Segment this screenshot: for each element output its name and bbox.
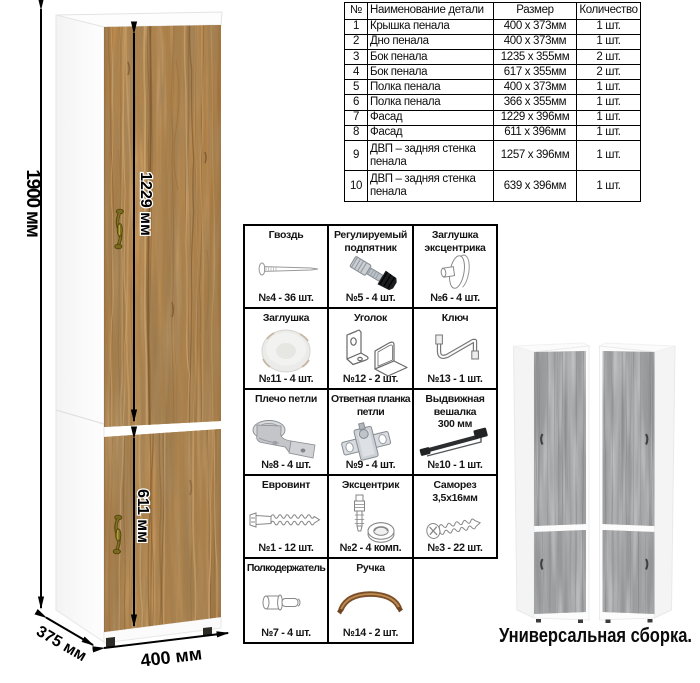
svg-text:1900 мм: 1900 мм bbox=[22, 169, 43, 236]
svg-text:400 мм: 400 мм bbox=[139, 643, 203, 670]
svg-text:611 мм: 611 мм bbox=[134, 489, 151, 543]
svg-text:375 мм: 375 мм bbox=[33, 623, 89, 665]
svg-text:1229 мм: 1229 мм bbox=[137, 172, 154, 236]
